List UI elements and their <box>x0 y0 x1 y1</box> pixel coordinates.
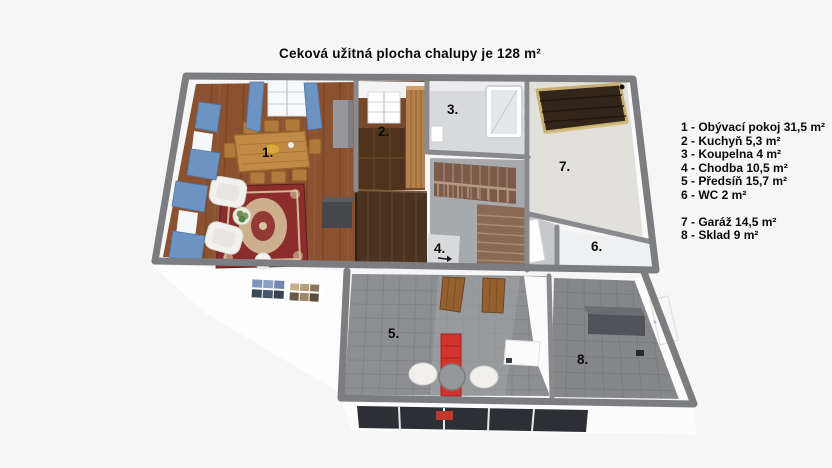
legend-item: 2 - Kuchyň 5,3 m² <box>681 135 825 149</box>
legend-group-2: 7 - Garáž 14,5 m² 8 - Sklad 9 m² <box>681 216 825 243</box>
room-label-5: 5. <box>388 326 399 341</box>
red-sign <box>436 411 453 420</box>
white-counter <box>504 340 540 366</box>
small-item <box>636 350 644 356</box>
room-label-8: 8. <box>577 352 588 367</box>
legend-item: 3 - Koupelna 4 m² <box>681 148 825 162</box>
room-3-floor <box>430 82 525 154</box>
plant-table <box>233 207 251 225</box>
round-table <box>439 364 465 390</box>
room-label-1: 1. <box>262 145 273 160</box>
room-label-4: 4. <box>434 241 445 256</box>
chair-left <box>409 363 437 385</box>
legend-item: 6 - WC 2 m² <box>681 189 825 203</box>
room-label-2: 2. <box>378 124 389 139</box>
north-window <box>268 80 307 116</box>
legend-item: 4 - Chodba 10,5 m² <box>681 162 825 176</box>
storage-box <box>584 306 645 336</box>
sideboard <box>322 197 356 228</box>
wardrobe <box>356 190 427 266</box>
window-band <box>357 406 588 432</box>
garage-door <box>537 84 628 133</box>
room-2-floor <box>358 81 425 190</box>
sink <box>431 126 443 142</box>
legend-item: 7 - Garáž 14,5 m² <box>681 216 825 230</box>
legend-item: 8 - Sklad 9 m² <box>681 229 825 243</box>
legend-item: 5 - Předsíň 15,7 m² <box>681 175 825 189</box>
floorplan-page: 1. 2. 3. 4. 5. 6. 7. 8. Ceková užitná pl… <box>0 0 832 468</box>
shower <box>486 86 522 138</box>
room-5-floor <box>344 274 550 396</box>
room-label-6: 6. <box>591 239 602 254</box>
room-label-7: 7. <box>559 159 570 174</box>
page-title: Ceková užitná plocha chalupy je 128 m² <box>180 46 640 61</box>
south-facade <box>152 265 347 397</box>
room-label-3: 3. <box>447 102 458 117</box>
chimney-block <box>333 100 353 148</box>
kitchen-window <box>368 92 400 123</box>
chair-right <box>470 366 498 388</box>
legend-group-1: 1 - Obývací pokoj 31,5 m² 2 - Kuchyň 5,3… <box>681 121 825 203</box>
legend: 1 - Obývací pokoj 31,5 m² 2 - Kuchyň 5,3… <box>681 121 825 243</box>
legend-item: 1 - Obývací pokoj 31,5 m² <box>681 121 825 135</box>
